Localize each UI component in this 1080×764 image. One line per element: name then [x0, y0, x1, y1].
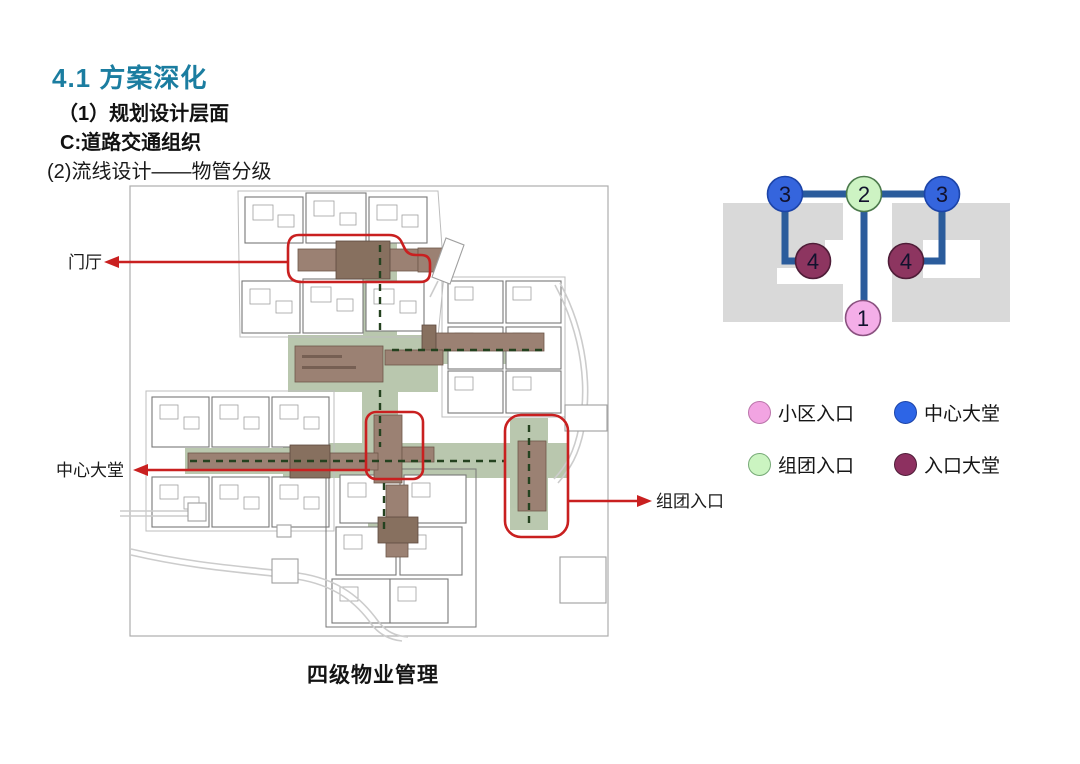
legend-item-label: 入口大堂 — [924, 451, 1000, 478]
page-title: 4.1 方案深化 — [52, 58, 207, 95]
legend-item: 小区入口 — [748, 399, 894, 426]
subtitle-planning-level: （1）规划设计层面 — [58, 97, 229, 126]
label-central-hall: 中心大堂 — [56, 461, 124, 480]
label-lobby: 门厅 — [68, 253, 102, 272]
slide: 4.1 方案深化 （1）规划设计层面 C:道路交通组织 (2)流线设计——物管分… — [0, 0, 1080, 764]
legend: 小区入口中心大堂组团入口入口大堂 — [748, 399, 1000, 478]
legend-item: 组团入口 — [748, 451, 894, 478]
legend-item-label: 组团入口 — [778, 451, 854, 478]
management-hierarchy-diagram: 123344 — [710, 160, 1020, 350]
label-cluster-entrance: 组团入口 — [656, 492, 724, 511]
diagram-node-label: 1 — [857, 306, 869, 331]
diagram-node-label: 3 — [936, 182, 948, 207]
legend-item: 中心大堂 — [894, 399, 1000, 426]
legend-swatch-icon — [894, 401, 917, 424]
legend-swatch-icon — [894, 453, 917, 476]
diagram-node-label: 4 — [807, 249, 819, 274]
site-plan: 门厅 中心大堂 组团入口 — [40, 185, 740, 655]
legend-item: 入口大堂 — [894, 451, 1000, 478]
diagram-node-label: 3 — [779, 182, 791, 207]
legend-item-label: 中心大堂 — [924, 399, 1000, 426]
subtitle-road-traffic: C:道路交通组织 — [60, 126, 201, 155]
diagram-node-label: 2 — [858, 182, 870, 207]
legend-swatch-icon — [748, 401, 771, 424]
plan-caption: 四级物业管理 — [307, 659, 439, 689]
diagram-node-label: 4 — [900, 249, 912, 274]
legend-item-label: 小区入口 — [778, 399, 854, 426]
subtitle-flowline-design: (2)流线设计——物管分级 — [47, 155, 271, 184]
legend-swatch-icon — [748, 453, 771, 476]
